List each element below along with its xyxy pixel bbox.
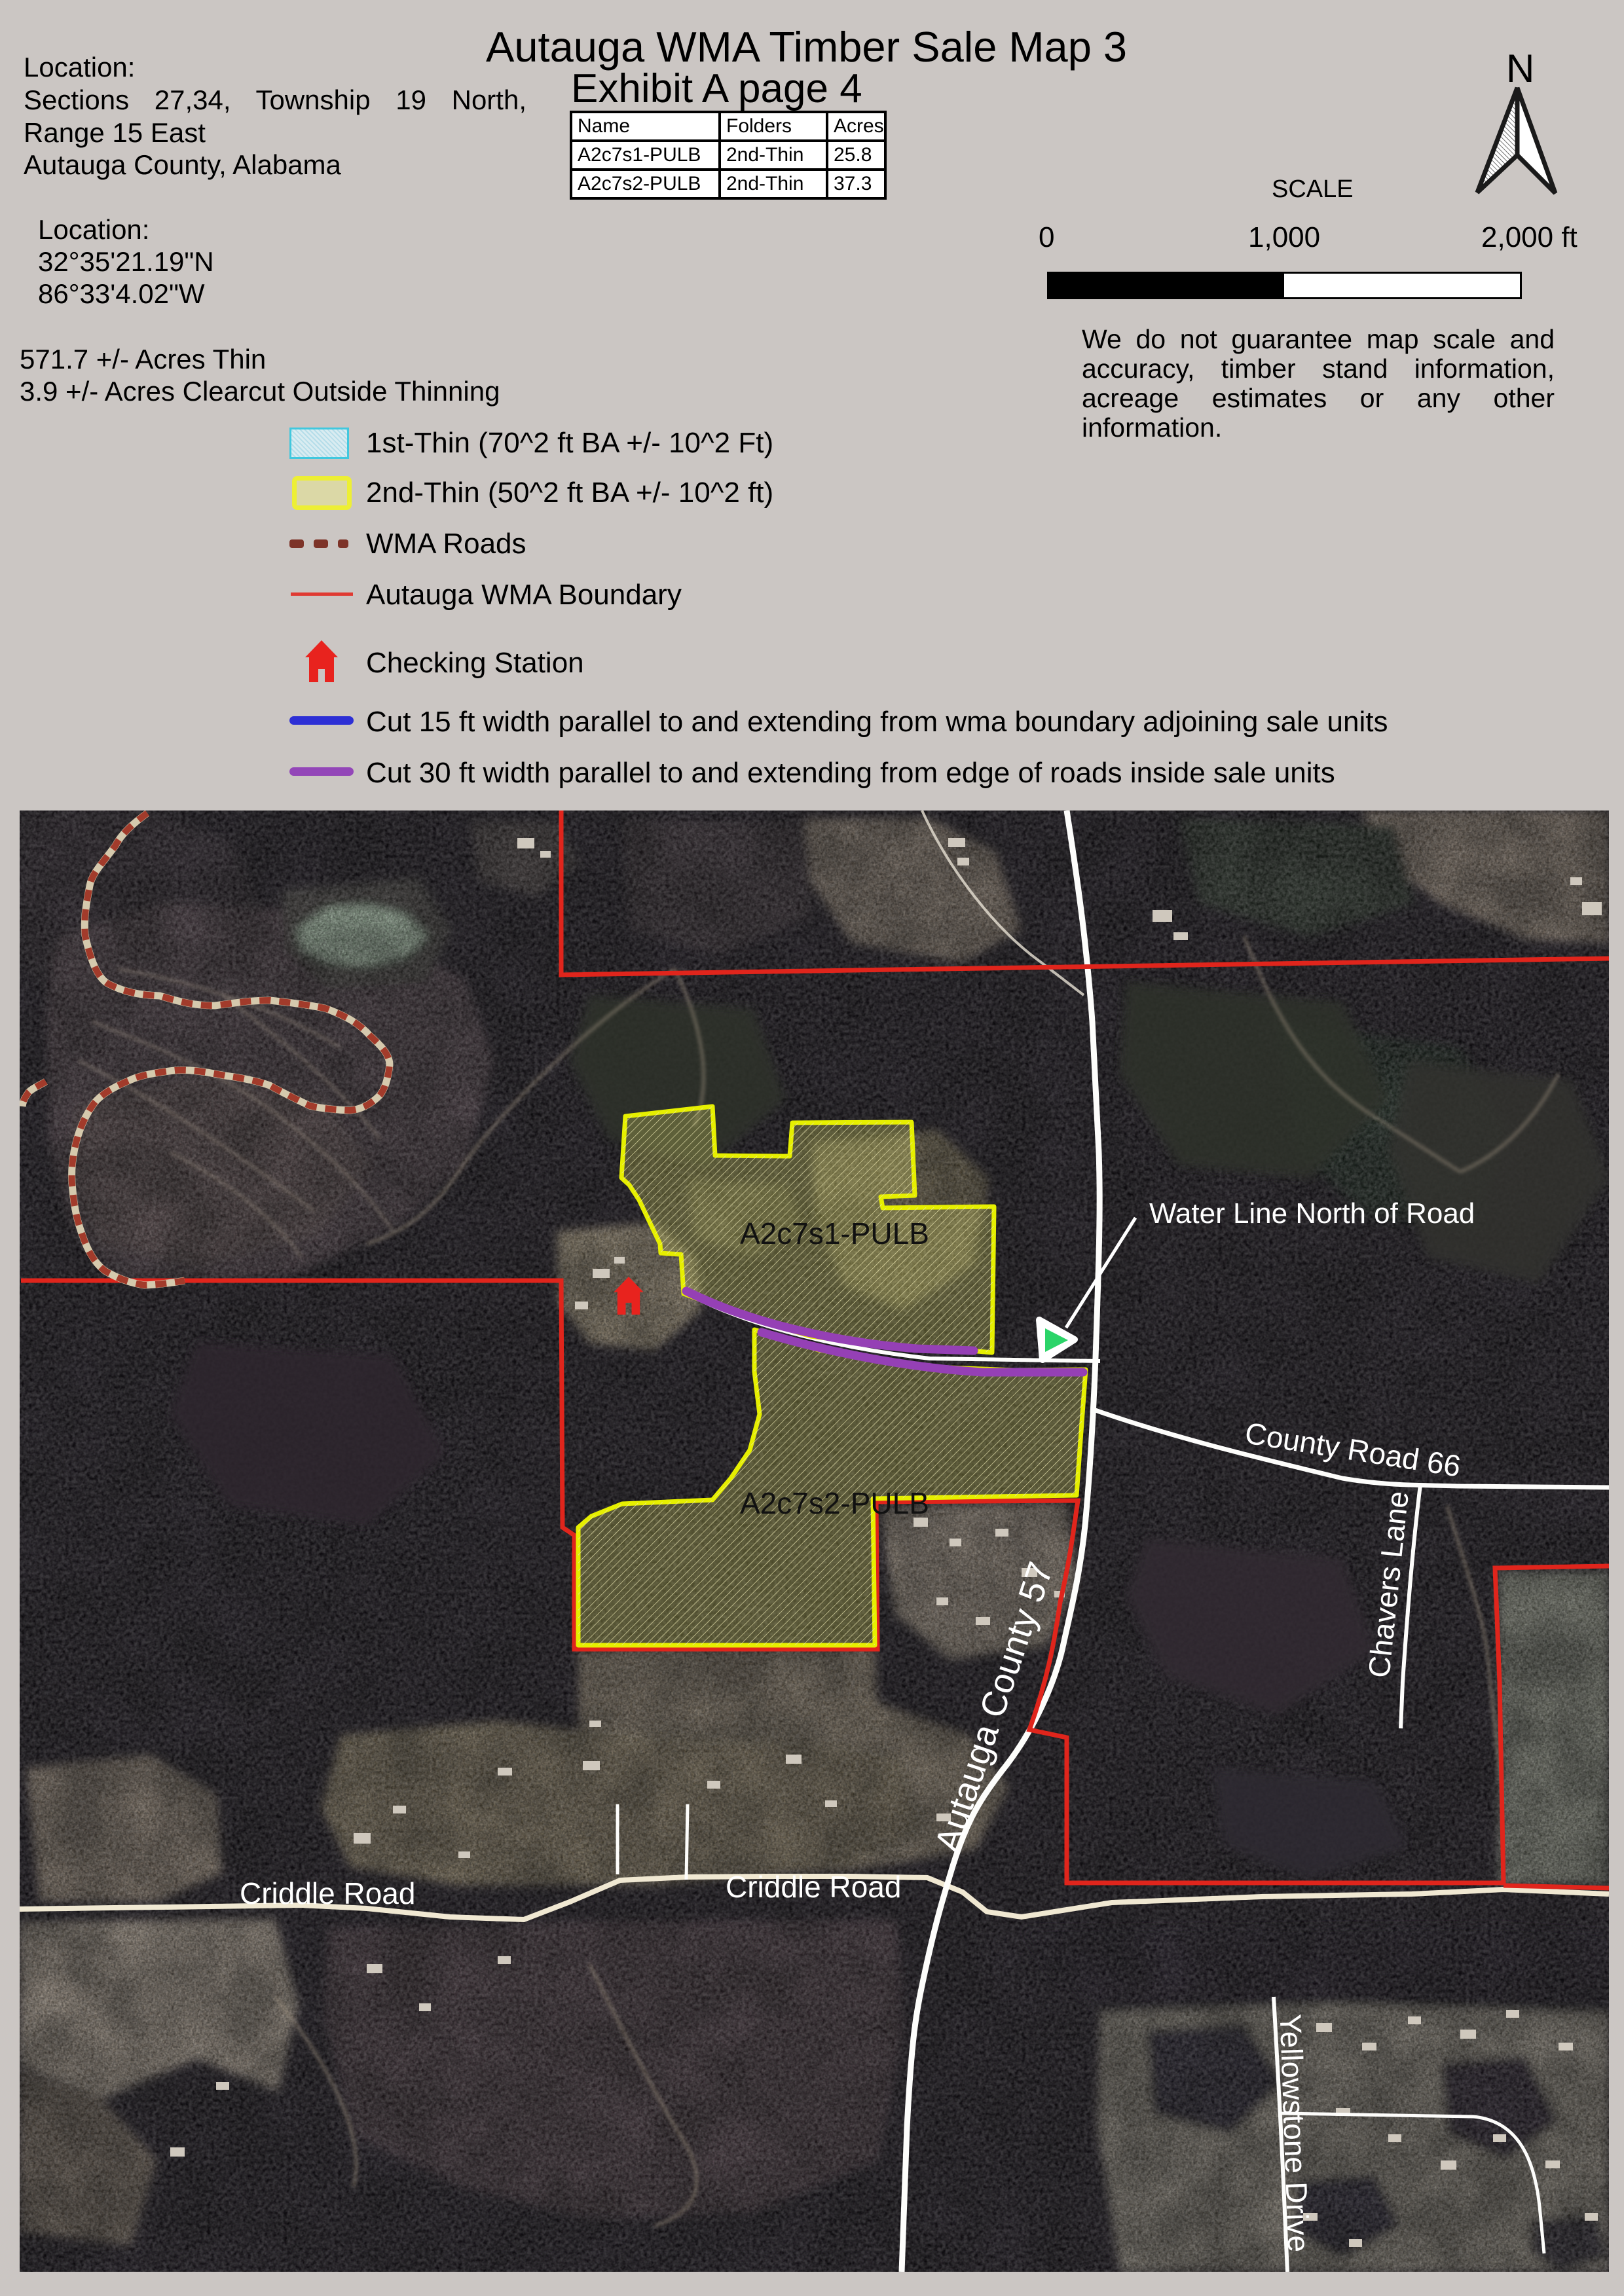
svg-text:Water Line North of Road: Water Line North of Road — [1149, 1197, 1475, 1230]
svg-text:Criddle Road: Criddle Road — [240, 1876, 415, 1910]
svg-text:A2c7s2-PULB: A2c7s2-PULB — [740, 1486, 929, 1520]
svg-text:Criddle Road: Criddle Road — [726, 1870, 901, 1904]
svg-text:A2c7s1-PULB: A2c7s1-PULB — [740, 1216, 929, 1250]
